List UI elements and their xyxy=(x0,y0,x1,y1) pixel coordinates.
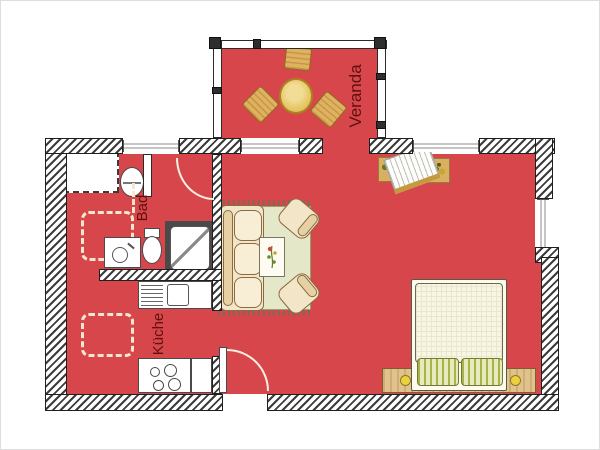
window-icon xyxy=(413,140,479,152)
kueche-label: Küche xyxy=(149,304,169,364)
bedside-lamp-icon xyxy=(510,375,521,386)
veranda-doorway-floor xyxy=(323,138,369,154)
coffee-table-icon xyxy=(259,237,285,277)
flower-decoration-icon xyxy=(262,241,282,273)
wall-top-b xyxy=(179,138,241,154)
burner-icon xyxy=(153,380,164,391)
wall-left xyxy=(45,138,67,411)
wall-top-a xyxy=(45,138,123,154)
sofa-backrest xyxy=(223,210,233,306)
veranda-post-tick xyxy=(376,121,386,129)
burner-icon xyxy=(164,364,177,377)
window-icon xyxy=(123,140,179,152)
sink-icon xyxy=(167,284,189,306)
wall-right-lower xyxy=(541,257,559,411)
shower-icon xyxy=(165,221,215,275)
entrance-door-leaf xyxy=(219,347,227,393)
veranda-post-tick xyxy=(212,87,222,94)
drainer-icon xyxy=(141,285,163,306)
sofa-icon xyxy=(220,205,264,311)
window-icon xyxy=(537,199,549,249)
wall-bottom-right xyxy=(267,394,559,411)
veranda-post-tick xyxy=(253,39,261,49)
wall-right-upper xyxy=(535,138,553,199)
chair-icon xyxy=(284,46,312,72)
closet-icon xyxy=(63,151,119,193)
window-icon xyxy=(241,140,299,152)
dashed-placement-icon xyxy=(81,313,134,357)
veranda-wall-top xyxy=(213,40,387,49)
bedside-lamp-icon xyxy=(400,375,411,386)
sofa-cushion xyxy=(234,277,262,308)
sofa-cushion xyxy=(234,210,262,241)
floor-plan-canvas: Veranda Bad Küche xyxy=(0,0,600,450)
pillow-icon xyxy=(417,358,459,386)
round-table-icon xyxy=(279,78,313,114)
shower-tray xyxy=(170,226,210,270)
washbasin-tap xyxy=(127,243,134,250)
toilet-icon xyxy=(142,236,162,264)
veranda-post xyxy=(374,37,386,49)
burner-icon xyxy=(150,367,160,377)
washbasin-icon xyxy=(104,237,141,268)
bad-label: Bad xyxy=(133,178,153,238)
burner-icon xyxy=(168,378,181,391)
wall-bad-kueche xyxy=(99,269,222,281)
veranda-label: Veranda xyxy=(346,56,366,136)
wall-top-c xyxy=(299,138,323,154)
washbasin-bowl xyxy=(112,247,128,263)
veranda-post xyxy=(209,37,221,49)
bed-duvet xyxy=(415,283,503,363)
wall-bottom-left xyxy=(45,394,223,411)
pillow-icon xyxy=(461,358,503,386)
wall-top-d xyxy=(369,138,413,154)
sofa-cushion xyxy=(234,243,262,275)
counter-extension xyxy=(191,358,212,393)
veranda-post-tick xyxy=(376,73,386,80)
